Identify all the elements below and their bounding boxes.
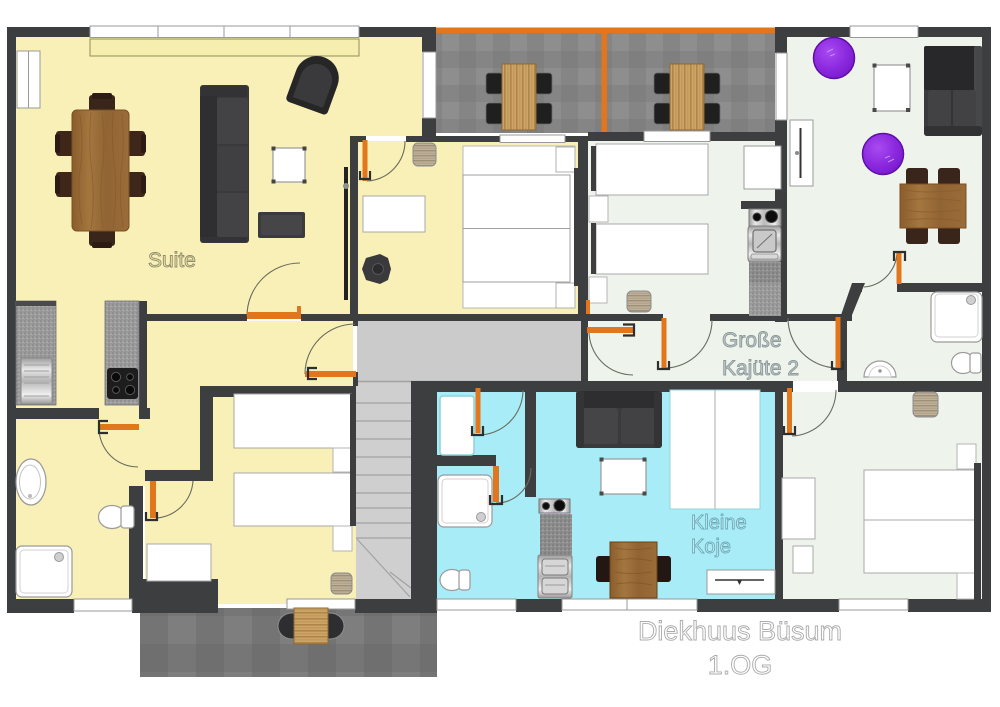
svg-text:Große: Große xyxy=(722,329,782,352)
svg-text:Suite: Suite xyxy=(148,249,196,272)
svg-text:Koje: Koje xyxy=(691,536,731,558)
svg-text:Kleine: Kleine xyxy=(691,512,747,534)
svg-text:Kajüte 2: Kajüte 2 xyxy=(722,357,799,380)
svg-text:1.OG: 1.OG xyxy=(708,650,773,680)
svg-text:Diekhuus Büsum: Diekhuus Büsum xyxy=(638,616,842,646)
